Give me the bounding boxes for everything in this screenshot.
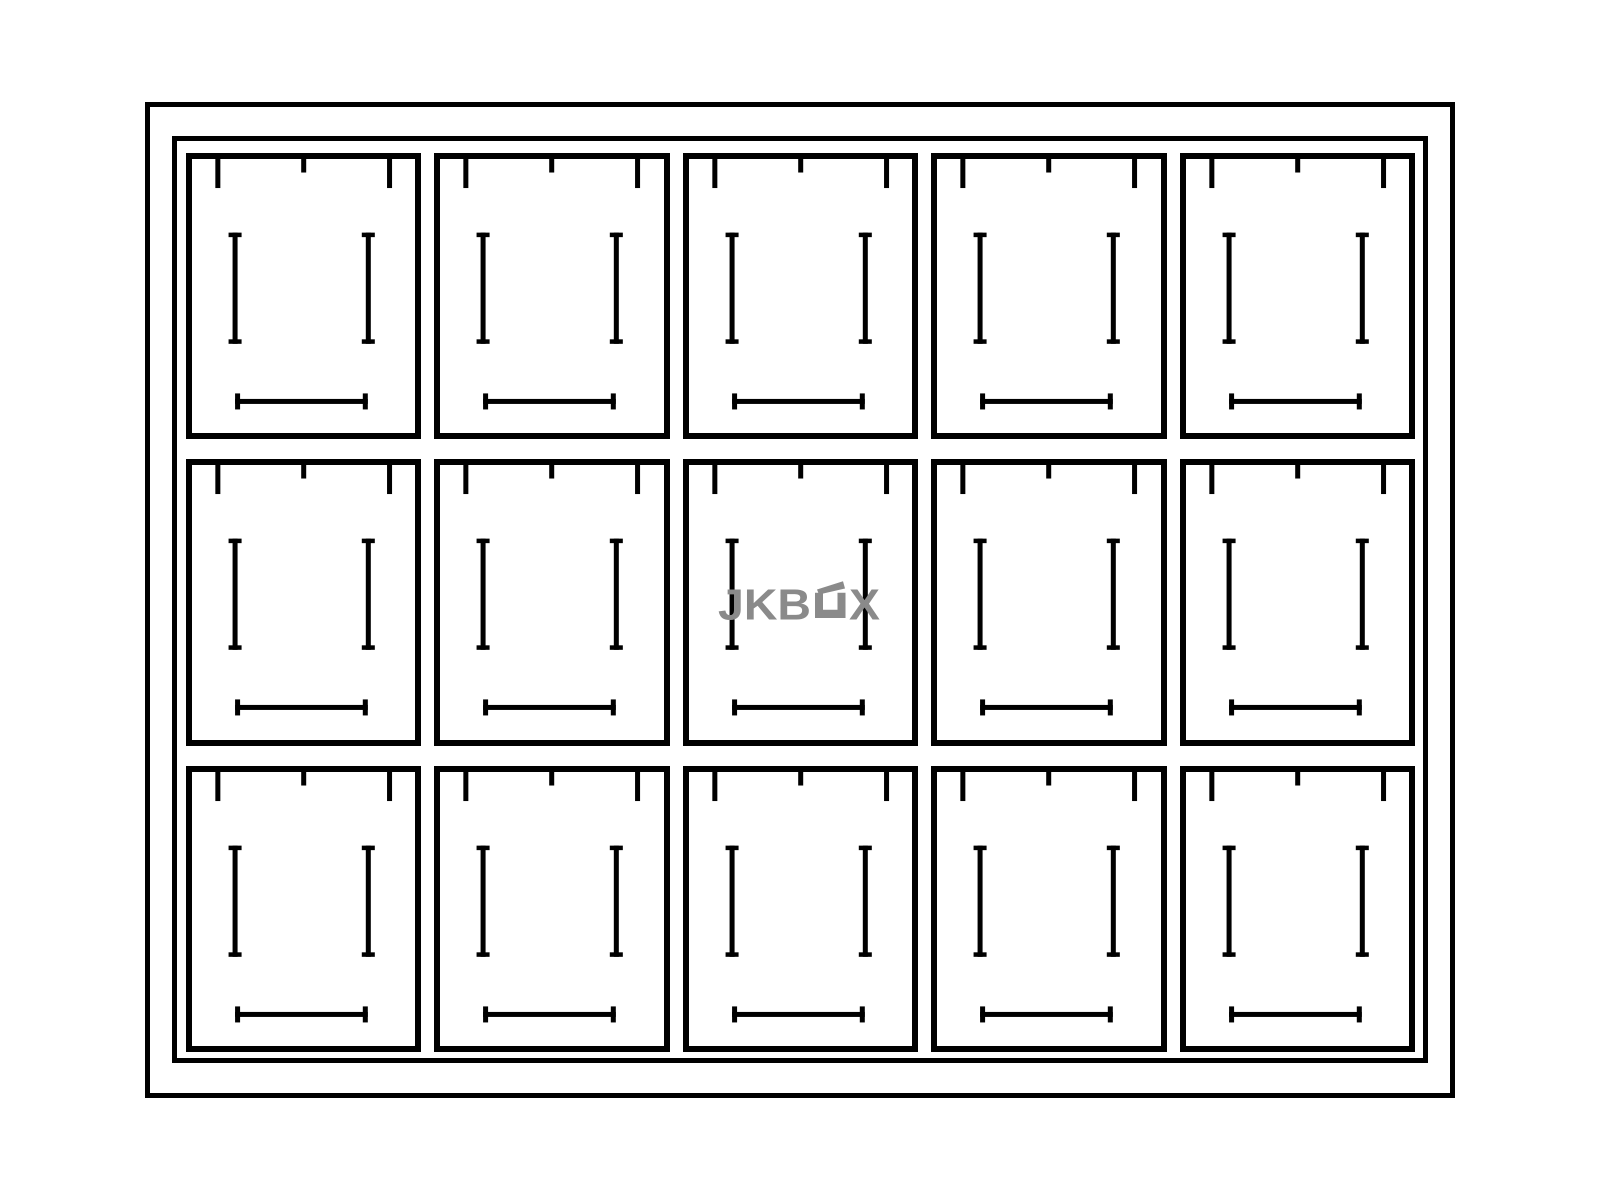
pad-slot-left-stem: [729, 846, 734, 957]
bottom-bar-right-cap: [1108, 393, 1113, 409]
bottom-bar-slot: [980, 700, 1113, 716]
pad-slot-right-bottom-cap: [859, 646, 872, 651]
bottom-bar-stem: [483, 1012, 616, 1017]
compartment-marks: [689, 159, 912, 433]
compartment: [1180, 766, 1415, 1052]
pad-slot-left: [725, 233, 738, 344]
jkbox-logo: JKB X: [718, 580, 882, 627]
pad-slot-right: [362, 846, 375, 957]
pad-slot-left-stem: [1226, 233, 1231, 344]
compartment-marks: [192, 772, 415, 1046]
pad-slot-left-stem: [481, 233, 486, 344]
pad-slot-right-stem: [1111, 539, 1116, 650]
jkbox-logo-watermark: JKB X: [718, 580, 882, 627]
pad-slot-left: [229, 233, 242, 344]
bottom-bar-slot: [732, 700, 865, 716]
top-notch-right: [884, 772, 889, 801]
top-notch-right: [1381, 465, 1386, 494]
bottom-bar-slot: [235, 393, 368, 409]
bottom-bar-slot: [732, 393, 865, 409]
pad-slot-right-stem: [1359, 233, 1364, 344]
pad-slot-right-stem: [1359, 846, 1364, 957]
compartment: [186, 153, 421, 439]
compartment-marks: [1186, 159, 1409, 433]
bottom-bar-slot: [483, 1006, 616, 1022]
top-notch-center: [1295, 465, 1300, 479]
pad-slot-left-bottom-cap: [974, 646, 987, 651]
pad-slot-right-bottom-cap: [1107, 339, 1120, 344]
pad-slot-left: [1222, 233, 1235, 344]
top-notch-right: [387, 159, 392, 188]
top-notch-left: [1209, 465, 1214, 494]
pad-slot-right-bottom-cap: [1355, 339, 1368, 344]
top-notch-right: [884, 465, 889, 494]
pad-slot-left-bottom-cap: [477, 952, 490, 957]
compartment: [434, 153, 669, 439]
pad-slot-left-bottom-cap: [1222, 339, 1235, 344]
pad-slot-right-bottom-cap: [859, 952, 872, 957]
bottom-bar-right-cap: [1108, 700, 1113, 716]
pad-slot-right: [1355, 233, 1368, 344]
top-notch-left: [712, 159, 717, 188]
top-notch-center: [798, 772, 803, 786]
bottom-bar-slot: [1229, 1006, 1362, 1022]
compartment: [931, 766, 1166, 1052]
logo-text-x: X: [849, 581, 880, 628]
top-notch-left: [961, 772, 966, 801]
pad-slot-right-bottom-cap: [1355, 952, 1368, 957]
pad-slot-right-bottom-cap: [610, 952, 623, 957]
bottom-bar-right-cap: [860, 393, 865, 409]
pad-slot-left: [477, 846, 490, 957]
bottom-bar-right-cap: [611, 393, 616, 409]
bottom-bar-right-cap: [611, 1006, 616, 1022]
pad-slot-right: [859, 846, 872, 957]
pad-slot-right-bottom-cap: [610, 646, 623, 651]
top-notch-right: [635, 159, 640, 188]
top-notch-left: [712, 465, 717, 494]
pad-slot-right-bottom-cap: [1355, 646, 1368, 651]
top-notch-center: [1295, 772, 1300, 786]
pad-slot-right-bottom-cap: [362, 339, 375, 344]
bottom-bar-stem: [980, 705, 1113, 710]
bottom-bar-right-cap: [1356, 700, 1361, 716]
box-lid-shape: [817, 581, 845, 594]
pad-slot-left: [725, 846, 738, 957]
top-notch-left: [961, 465, 966, 494]
bottom-bar-right-cap: [363, 393, 368, 409]
pad-slot-right: [362, 539, 375, 650]
pad-slot-left-bottom-cap: [725, 646, 738, 651]
pad-slot-right-stem: [1359, 539, 1364, 650]
compartment-marks: [192, 465, 415, 739]
bottom-bar-slot: [732, 1006, 865, 1022]
box-body-shape: [815, 593, 846, 618]
pad-slot-left-bottom-cap: [477, 646, 490, 651]
pad-slot-left-stem: [978, 846, 983, 957]
pad-slot-left-stem: [1226, 539, 1231, 650]
pad-slot-right: [610, 846, 623, 957]
pad-slot-right-bottom-cap: [1107, 646, 1120, 651]
compartment-marks: [1186, 772, 1409, 1046]
pad-slot-left-bottom-cap: [229, 339, 242, 344]
pad-slot-right-stem: [863, 846, 868, 957]
compartment-marks: [937, 465, 1160, 739]
pad-slot-left-bottom-cap: [229, 646, 242, 651]
pad-slot-left-bottom-cap: [725, 339, 738, 344]
logo-text-jkb: JKB: [718, 581, 811, 628]
pad-slot-left-bottom-cap: [974, 952, 987, 957]
open-box-icon: [815, 581, 846, 618]
top-notch-center: [550, 772, 555, 786]
pad-slot-right-stem: [366, 233, 371, 344]
top-notch-center: [550, 159, 555, 173]
top-notch-left: [1209, 159, 1214, 188]
bottom-bar-slot: [1229, 700, 1362, 716]
pad-slot-right-stem: [366, 539, 371, 650]
bottom-bar-slot: [1229, 393, 1362, 409]
top-notch-center: [1295, 159, 1300, 173]
pad-slot-right-bottom-cap: [362, 646, 375, 651]
pad-slot-right: [1107, 233, 1120, 344]
pad-slot-left: [1222, 539, 1235, 650]
pad-slot-right-bottom-cap: [610, 339, 623, 344]
top-notch-left: [464, 772, 469, 801]
bottom-bar-stem: [235, 399, 368, 404]
pad-slot-left-stem: [978, 539, 983, 650]
top-notch-left: [464, 159, 469, 188]
top-notch-right: [635, 465, 640, 494]
pad-slot-right-bottom-cap: [1107, 952, 1120, 957]
compartment: [931, 459, 1166, 745]
bottom-bar-slot: [483, 700, 616, 716]
pad-slot-left-stem: [1226, 846, 1231, 957]
top-notch-center: [1046, 772, 1051, 786]
top-notch-right: [1381, 159, 1386, 188]
pad-slot-left-stem: [729, 233, 734, 344]
top-notch-center: [1046, 465, 1051, 479]
pad-slot-right-stem: [614, 846, 619, 957]
bottom-bar-stem: [235, 705, 368, 710]
bottom-bar-right-cap: [363, 700, 368, 716]
pad-slot-right: [610, 539, 623, 650]
bottom-bar-right-cap: [860, 1006, 865, 1022]
bottom-bar-stem: [483, 399, 616, 404]
bottom-bar-right-cap: [860, 700, 865, 716]
bottom-bar-stem: [732, 399, 865, 404]
bottom-bar-right-cap: [363, 1006, 368, 1022]
pad-slot-left-bottom-cap: [974, 339, 987, 344]
pad-slot-right: [1355, 539, 1368, 650]
pad-slot-left: [974, 233, 987, 344]
pad-slot-left-stem: [233, 539, 238, 650]
pad-slot-left: [974, 846, 987, 957]
top-notch-right: [387, 772, 392, 801]
pad-slot-right: [1107, 846, 1120, 957]
pad-slot-left: [1222, 846, 1235, 957]
top-notch-right: [387, 465, 392, 494]
pad-slot-left-bottom-cap: [725, 952, 738, 957]
bottom-bar-slot: [235, 700, 368, 716]
top-notch-right: [1132, 465, 1137, 494]
compartment: [683, 766, 918, 1052]
top-notch-right: [635, 772, 640, 801]
pad-slot-left-stem: [233, 846, 238, 957]
pad-slot-left-bottom-cap: [1222, 646, 1235, 651]
top-notch-right: [884, 159, 889, 188]
bottom-bar-slot: [980, 1006, 1113, 1022]
top-notch-center: [1046, 159, 1051, 173]
pad-slot-left-bottom-cap: [1222, 952, 1235, 957]
bottom-bar-right-cap: [1108, 1006, 1113, 1022]
pad-slot-left: [974, 539, 987, 650]
pad-slot-right-bottom-cap: [859, 339, 872, 344]
compartment: [1180, 459, 1415, 745]
top-notch-left: [961, 159, 966, 188]
top-notch-left: [464, 465, 469, 494]
pad-slot-left: [229, 846, 242, 957]
compartment: [186, 766, 421, 1052]
top-notch-center: [301, 465, 306, 479]
pad-slot-right-stem: [614, 233, 619, 344]
bottom-bar-slot: [483, 393, 616, 409]
top-notch-left: [215, 772, 220, 801]
top-notch-right: [1132, 159, 1137, 188]
pad-slot-left-stem: [481, 846, 486, 957]
pad-slot-right-stem: [366, 846, 371, 957]
pad-slot-right-stem: [1111, 846, 1116, 957]
pad-slot-right: [859, 233, 872, 344]
compartment: [434, 459, 669, 745]
bottom-bar-right-cap: [611, 700, 616, 716]
diagram-canvas: JKB X: [0, 0, 1600, 1200]
pad-slot-right-stem: [863, 233, 868, 344]
compartment: [931, 153, 1166, 439]
top-notch-right: [1381, 772, 1386, 801]
bottom-bar-stem: [1229, 1012, 1362, 1017]
pad-slot-left-stem: [481, 539, 486, 650]
top-notch-left: [215, 465, 220, 494]
bottom-bar-stem: [732, 1012, 865, 1017]
bottom-bar-stem: [483, 705, 616, 710]
pad-slot-right: [1355, 846, 1368, 957]
pad-slot-right-stem: [614, 539, 619, 650]
top-notch-center: [550, 465, 555, 479]
top-notch-center: [798, 465, 803, 479]
bottom-bar-stem: [732, 705, 865, 710]
bottom-bar-slot: [235, 1006, 368, 1022]
compartment: [683, 153, 918, 439]
compartment-marks: [937, 772, 1160, 1046]
pad-slot-left: [229, 539, 242, 650]
compartment-marks: [440, 772, 663, 1046]
compartment-marks: [192, 159, 415, 433]
compartment-marks: [440, 465, 663, 739]
pad-slot-right-stem: [1111, 233, 1116, 344]
pad-slot-left-stem: [233, 233, 238, 344]
compartment: [186, 459, 421, 745]
pad-slot-right-bottom-cap: [362, 952, 375, 957]
pad-slot-right: [610, 233, 623, 344]
pad-slot-left-bottom-cap: [477, 339, 490, 344]
pad-slot-left: [477, 539, 490, 650]
bottom-bar-stem: [1229, 399, 1362, 404]
top-notch-center: [798, 159, 803, 173]
bottom-bar-slot: [980, 393, 1113, 409]
top-notch-right: [1132, 772, 1137, 801]
compartment: [434, 766, 669, 1052]
pad-slot-left-stem: [978, 233, 983, 344]
pad-slot-right: [1107, 539, 1120, 650]
bottom-bar-right-cap: [1356, 1006, 1361, 1022]
pad-slot-right: [362, 233, 375, 344]
compartment-marks: [689, 772, 912, 1046]
top-notch-left: [1209, 772, 1214, 801]
pad-slot-left: [477, 233, 490, 344]
compartment-marks: [440, 159, 663, 433]
bottom-bar-right-cap: [1356, 393, 1361, 409]
compartment-marks: [1186, 465, 1409, 739]
bottom-bar-stem: [980, 399, 1113, 404]
compartment-marks: [937, 159, 1160, 433]
compartment: [1180, 153, 1415, 439]
top-notch-left: [215, 159, 220, 188]
bottom-bar-stem: [1229, 705, 1362, 710]
bottom-bar-stem: [980, 1012, 1113, 1017]
top-notch-left: [712, 772, 717, 801]
top-notch-center: [301, 772, 306, 786]
pad-slot-left-bottom-cap: [229, 952, 242, 957]
bottom-bar-stem: [235, 1012, 368, 1017]
top-notch-center: [301, 159, 306, 173]
